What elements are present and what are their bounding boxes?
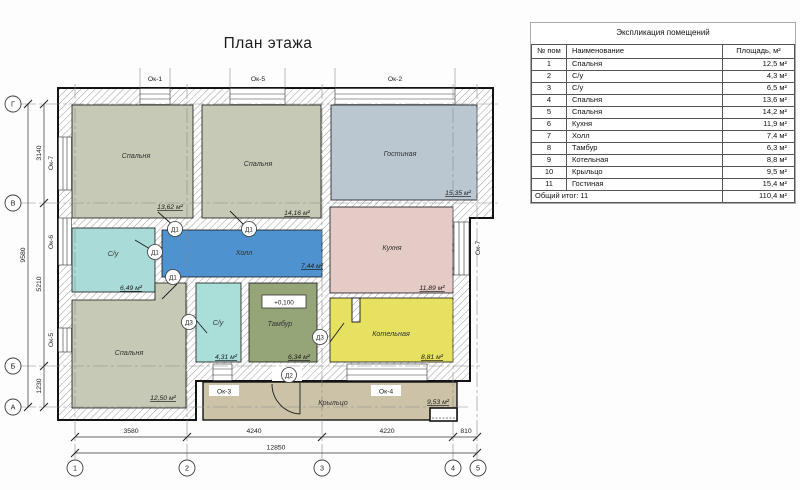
floor-plan-page: { "title": "План этажа", "plan": { "grid… bbox=[0, 0, 800, 490]
label-bathroom-left: С/у bbox=[108, 249, 119, 258]
cell-num: 6 bbox=[532, 118, 567, 130]
door-tag-d1: Д1 bbox=[245, 227, 253, 234]
cell-area: 11,9 м² bbox=[723, 118, 795, 130]
cell-area: 6,3 м² bbox=[723, 142, 795, 154]
dim-12850: 12850 bbox=[267, 445, 286, 452]
cell-name: Тамбур bbox=[567, 142, 723, 154]
schedule-row: 10Крыльцо9,5 м² bbox=[532, 166, 795, 178]
boiler-stub-wall bbox=[352, 298, 360, 322]
label-window-ok3: Ок-3 bbox=[217, 389, 232, 396]
area-kitchen: 11,89 м² bbox=[419, 285, 445, 292]
label-porch: Крыльцо bbox=[318, 398, 347, 407]
grid-col-2: 2 bbox=[185, 464, 189, 473]
window-ok4 bbox=[347, 364, 427, 381]
grid-row-g: Г bbox=[11, 100, 15, 109]
grid-row-b: Б bbox=[11, 362, 16, 371]
cell-num: 9 bbox=[532, 154, 567, 166]
grid-row-v: В bbox=[11, 199, 16, 208]
label-window-ok7-left: Ок-7 bbox=[48, 156, 55, 171]
room-bathroom-left bbox=[72, 228, 155, 292]
cell-name: Спальня bbox=[567, 58, 723, 70]
cell-name: Гостиная bbox=[567, 178, 723, 190]
schedule-total-row: Общий итог: 11 110,4 м² bbox=[532, 190, 795, 202]
dim-4220: 4220 bbox=[379, 428, 394, 435]
cell-area: 6,5 м² bbox=[723, 82, 795, 94]
area-bathroom-left: 6,49 м² bbox=[120, 285, 143, 292]
label-hall: Холл bbox=[235, 248, 253, 257]
area-bathroom-small: 4,31 м² bbox=[215, 354, 238, 361]
window-ok5-left bbox=[59, 328, 72, 352]
schedule-row: 9Котельная8,8 м² bbox=[532, 154, 795, 166]
schedule-row: 11Гостиная15,4 м² bbox=[532, 178, 795, 190]
dim-1230: 1230 bbox=[36, 378, 43, 393]
label-bedroom-top-left: Спальня bbox=[122, 151, 151, 160]
schedule-row: 3С/у6,5 м² bbox=[532, 82, 795, 94]
cell-num: 11 bbox=[532, 178, 567, 190]
elevation-mark: +0,100 bbox=[274, 300, 294, 307]
label-window-ok5-top: Ок-5 bbox=[251, 76, 266, 83]
cell-name: С/у bbox=[567, 82, 723, 94]
cell-num: 10 bbox=[532, 166, 567, 178]
cell-num: 2 bbox=[532, 70, 567, 82]
window-ok2 bbox=[335, 89, 455, 105]
cell-name: Крыльцо bbox=[567, 166, 723, 178]
area-bedroom-top-middle: 14,16 м² bbox=[284, 210, 311, 217]
grid-col-1: 1 bbox=[73, 464, 77, 473]
room-schedule: Экспликация помещений № пом Наименование… bbox=[530, 22, 796, 204]
schedule-row: 2С/у4,3 м² bbox=[532, 70, 795, 82]
cell-name: Холл bbox=[567, 130, 723, 142]
door-tag-d2: Д2 bbox=[285, 373, 293, 380]
cell-num: 1 bbox=[532, 58, 567, 70]
dim-5210: 5210 bbox=[36, 276, 43, 291]
area-hall: 7,44 м² bbox=[301, 263, 324, 270]
schedule-row: 4Спальня13,6 м² bbox=[532, 94, 795, 106]
label-tambour: Тамбур bbox=[268, 319, 293, 328]
dim-810: 810 bbox=[460, 428, 472, 435]
porch-step bbox=[430, 408, 457, 421]
cell-area: 7,4 м² bbox=[723, 130, 795, 142]
cell-area: 14,2 м² bbox=[723, 106, 795, 118]
label-bathroom-small: С/у bbox=[213, 318, 224, 327]
cell-num: 3 bbox=[532, 82, 567, 94]
room-bedroom-bottom-left bbox=[72, 283, 186, 408]
door-tag-d3: Д3 bbox=[316, 335, 324, 342]
room-bedroom-top-left bbox=[72, 105, 193, 218]
cell-area: 13,6 м² bbox=[723, 94, 795, 106]
dimension-chain-left: 3140 5210 1230 9580 bbox=[20, 100, 48, 411]
door-tag-d1: Д1 bbox=[151, 250, 159, 257]
window-ok7-left bbox=[59, 137, 72, 190]
label-boiler: Котельная bbox=[372, 329, 410, 338]
door-tag-d3: Д3 bbox=[185, 320, 193, 327]
cell-area: 12,5 м² bbox=[723, 58, 795, 70]
cell-name: Котельная bbox=[567, 154, 723, 166]
schedule-header-row: № пом Наименование Площадь, м² bbox=[532, 45, 795, 59]
grid-col-4: 4 bbox=[451, 464, 455, 473]
cell-name: Спальня bbox=[567, 106, 723, 118]
schedule-title: Экспликация помещений bbox=[531, 23, 795, 44]
total-area: 110,4 м² bbox=[723, 190, 795, 202]
cell-name: Спальня bbox=[567, 94, 723, 106]
label-window-ok6: Ок-6 bbox=[48, 235, 55, 250]
cell-area: 8,8 м² bbox=[723, 154, 795, 166]
label-window-ok4: Ок-4 bbox=[379, 389, 394, 396]
door-tag-d1: Д1 bbox=[171, 227, 179, 234]
label-living: Гостиная bbox=[384, 149, 417, 158]
area-porch: 9,53 м² bbox=[427, 399, 450, 406]
cell-area: 9,5 м² bbox=[723, 166, 795, 178]
area-boiler: 8,81 м² bbox=[421, 354, 444, 361]
col-header-area: Площадь, м² bbox=[723, 45, 795, 59]
plan-title: План этажа bbox=[224, 35, 313, 52]
area-bedroom-top-left: 13,62 м² bbox=[157, 204, 184, 211]
dim-3140: 3140 bbox=[36, 145, 43, 160]
window-ok1 bbox=[140, 89, 170, 105]
cell-name: Кухня bbox=[567, 118, 723, 130]
window-ok5-top bbox=[230, 89, 285, 105]
label-window-ok7-right: Ок-7 bbox=[475, 241, 482, 256]
schedule-row: 1Спальня12,5 м² bbox=[532, 58, 795, 70]
total-label: Общий итог: 11 bbox=[532, 190, 723, 202]
floor-plan-drawing: План этажа bbox=[0, 0, 524, 490]
dim-3580: 3580 bbox=[123, 428, 138, 435]
label-window-ok2: Ок-2 bbox=[388, 76, 403, 83]
grid-col-5: 5 bbox=[476, 464, 480, 473]
cell-num: 4 bbox=[532, 94, 567, 106]
dim-9580: 9580 bbox=[20, 247, 27, 262]
dim-4240: 4240 bbox=[246, 428, 261, 435]
cell-area: 4,3 м² bbox=[723, 70, 795, 82]
area-living: 15,35 м² bbox=[445, 190, 472, 197]
schedule-row: 6Кухня11,9 м² bbox=[532, 118, 795, 130]
window-ok7-right bbox=[454, 222, 469, 275]
label-window-ok5-left: Ок-5 bbox=[48, 333, 55, 348]
schedule-row: 7Холл7,4 м² bbox=[532, 130, 795, 142]
col-header-name: Наименование bbox=[567, 45, 723, 59]
label-kitchen: Кухня bbox=[382, 243, 401, 252]
window-ok3 bbox=[213, 364, 232, 381]
area-tambour: 6,34 м² bbox=[288, 354, 311, 361]
label-window-ok1: Ок-1 bbox=[148, 76, 163, 83]
cell-num: 7 bbox=[532, 130, 567, 142]
schedule-table: № пом Наименование Площадь, м² 1Спальня1… bbox=[531, 44, 795, 203]
cell-area: 15,4 м² bbox=[723, 178, 795, 190]
window-ok6 bbox=[59, 218, 72, 265]
schedule-row: 8Тамбур6,3 м² bbox=[532, 142, 795, 154]
cell-name: С/у bbox=[567, 70, 723, 82]
schedule-row: 5Спальня14,2 м² bbox=[532, 106, 795, 118]
label-bedroom-top-middle: Спальня bbox=[244, 159, 273, 168]
cell-num: 5 bbox=[532, 106, 567, 118]
dimension-chain-bottom: 3580 4240 4220 810 12850 bbox=[71, 428, 481, 457]
grid-row-a: А bbox=[11, 403, 16, 412]
cell-num: 8 bbox=[532, 142, 567, 154]
label-bedroom-bottom-left: Спальня bbox=[115, 348, 144, 357]
col-header-num: № пом bbox=[532, 45, 567, 59]
door-tag-d1: Д1 bbox=[169, 275, 177, 282]
area-bedroom-bottom-left: 12,50 м² bbox=[150, 395, 177, 402]
grid-col-3: 3 bbox=[320, 464, 324, 473]
